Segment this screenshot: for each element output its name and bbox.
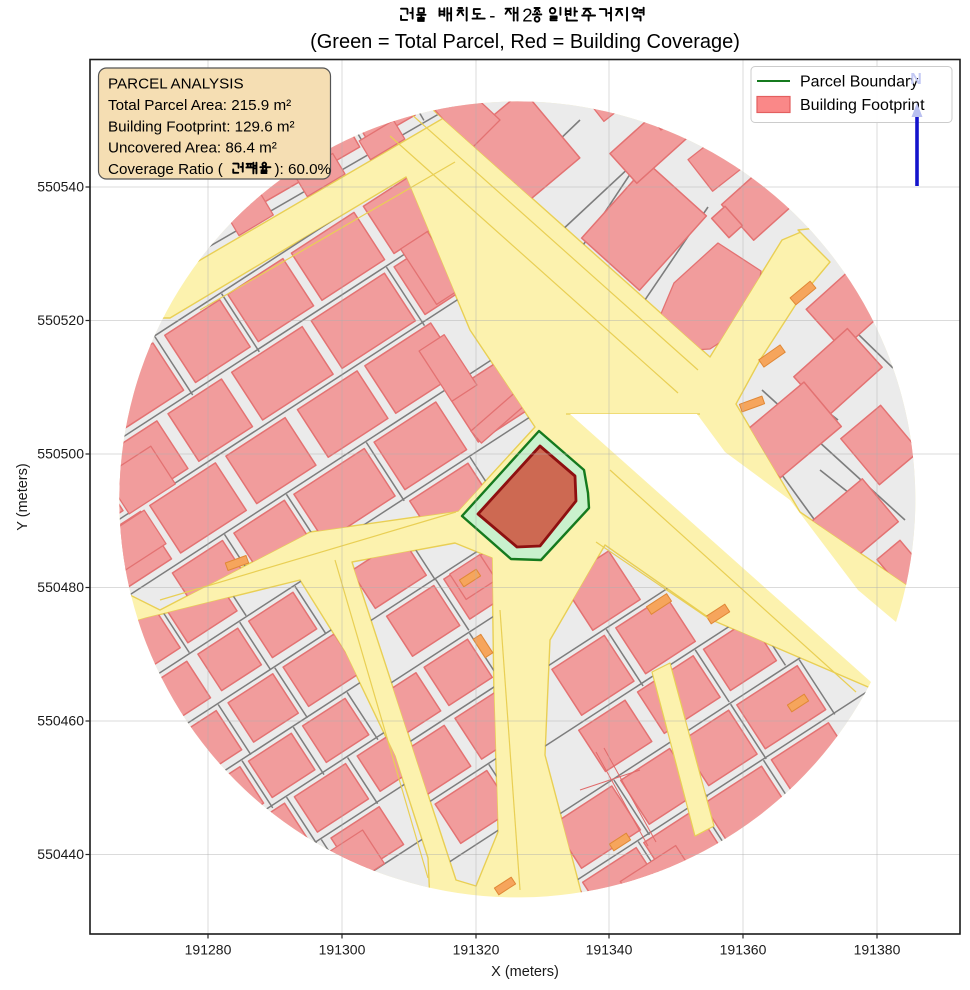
svg-text:550480: 550480 — [37, 579, 84, 595]
svg-text:PARCEL ANALYSIS: PARCEL ANALYSIS — [108, 76, 244, 93]
svg-text:191300: 191300 — [319, 942, 366, 958]
svg-text:191360: 191360 — [720, 942, 767, 958]
svg-text:191340: 191340 — [586, 942, 633, 958]
svg-text:2: 2 — [522, 5, 532, 26]
svg-text:550440: 550440 — [37, 846, 84, 862]
svg-text:Building Footprint: 129.6 m²: Building Footprint: 129.6 m² — [108, 118, 295, 135]
svg-text:Coverage Ratio (: Coverage Ratio ( — [108, 161, 223, 178]
svg-text:Building Footprint: Building Footprint — [800, 97, 925, 114]
svg-text:Parcel Boundary: Parcel Boundary — [800, 74, 918, 91]
svg-text:191320: 191320 — [453, 942, 500, 958]
svg-text:550520: 550520 — [37, 312, 84, 328]
svg-text:Total Parcel Area: 215.9 m²: Total Parcel Area: 215.9 m² — [108, 97, 291, 114]
svg-text:550460: 550460 — [37, 713, 84, 729]
svg-text:): 60.0%: ): 60.0% — [275, 161, 332, 178]
svg-text:-: - — [489, 5, 495, 26]
svg-text:550500: 550500 — [37, 446, 84, 462]
svg-text:Y (meters): Y (meters) — [15, 463, 31, 530]
svg-text:X (meters): X (meters) — [491, 964, 559, 980]
svg-text:550540: 550540 — [37, 179, 84, 195]
svg-text:191380: 191380 — [854, 942, 901, 958]
svg-text:N: N — [910, 71, 922, 88]
svg-text:(Green = Total Parcel, Red = B: (Green = Total Parcel, Red = Building Co… — [310, 31, 740, 53]
svg-text:191280: 191280 — [185, 942, 232, 958]
svg-text:Uncovered Area: 86.4 m²: Uncovered Area: 86.4 m² — [108, 140, 277, 157]
